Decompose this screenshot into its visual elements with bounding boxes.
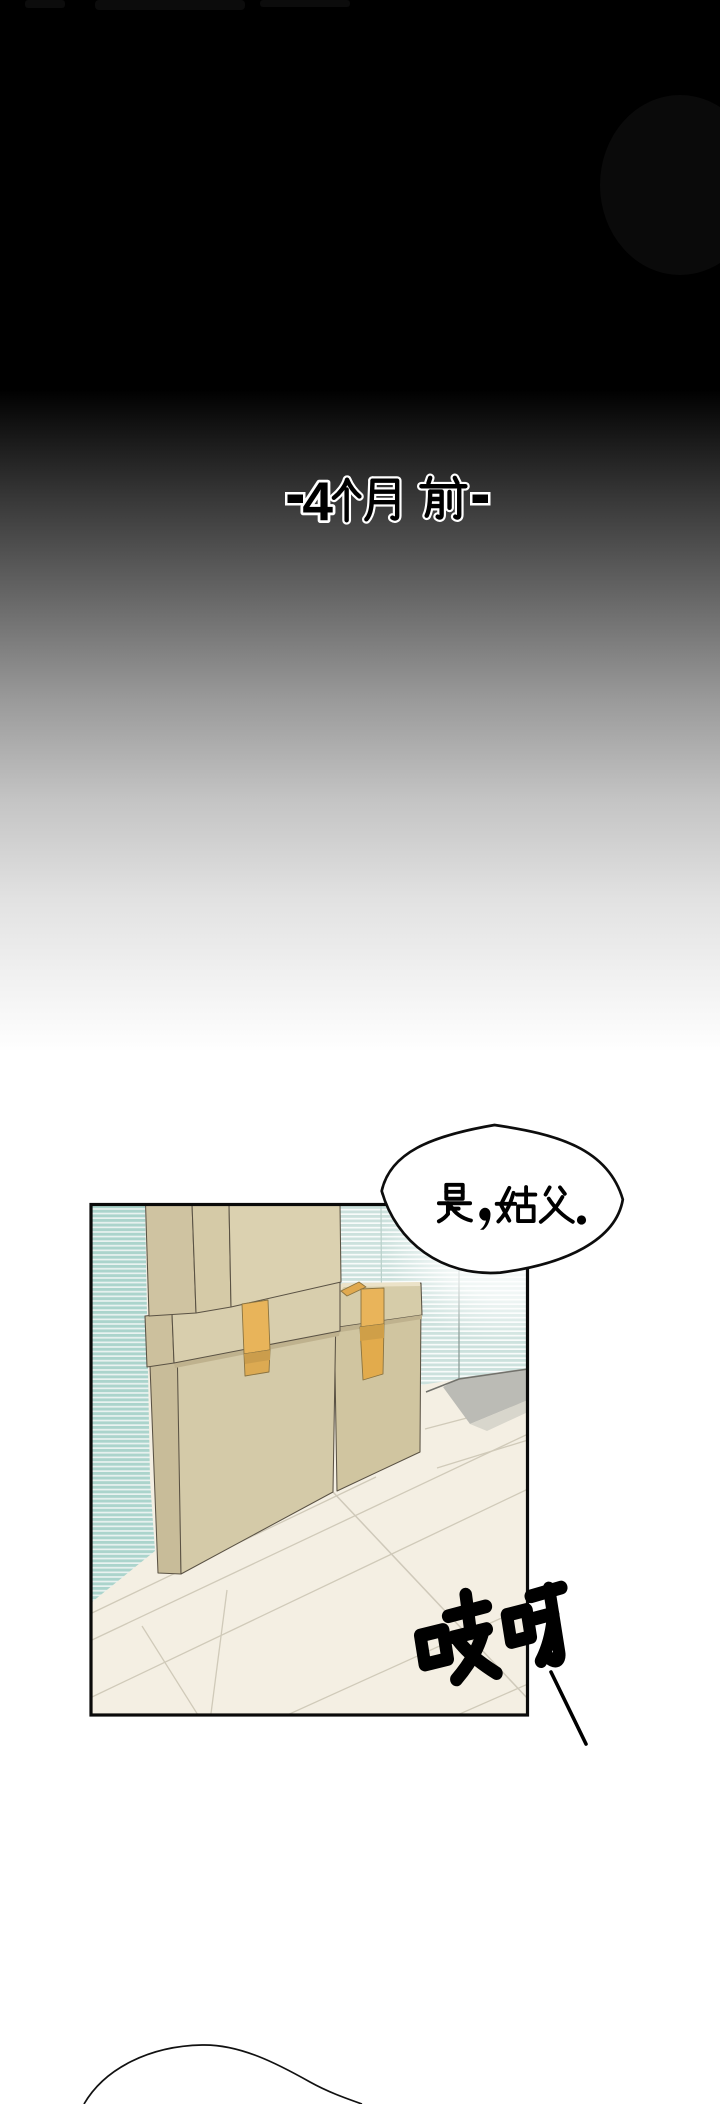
svg-text:4: 4 — [302, 470, 333, 532]
